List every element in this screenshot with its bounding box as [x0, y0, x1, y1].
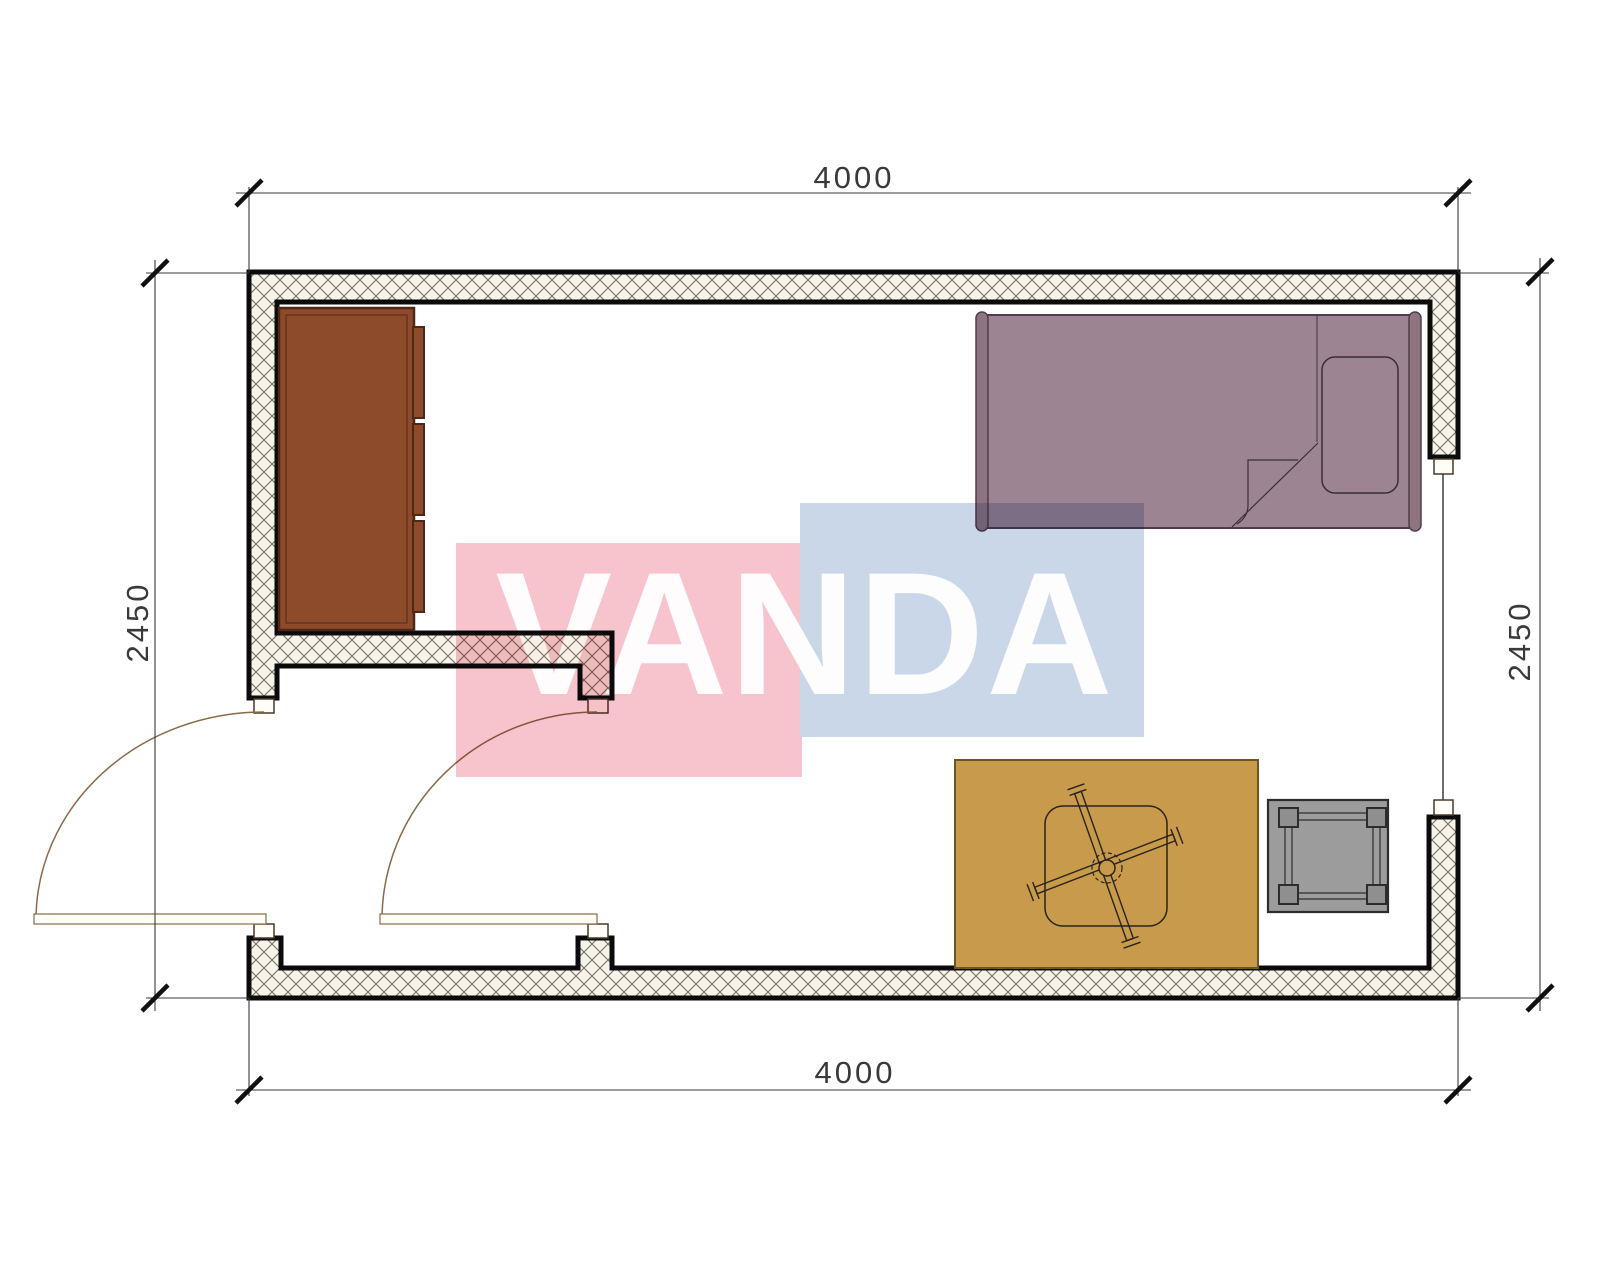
dimension-top-lines: [236, 187, 1471, 272]
floor-plan-page: VANDA: [0, 0, 1600, 1280]
dimension-top-label: 4000: [814, 160, 895, 195]
wardrobe-drawers: [413, 327, 424, 612]
door-left-leaf: [34, 914, 266, 924]
jamb-left-door-bottom: [254, 924, 274, 938]
jamb-second-door-top: [588, 699, 608, 713]
bed-rail-right: [1409, 312, 1421, 531]
dimension-right-label: 2450: [1502, 601, 1537, 682]
jamb-left-door-top: [254, 699, 274, 713]
wardrobe: [279, 308, 424, 630]
door-second: [380, 712, 597, 924]
bed-rail-left: [976, 312, 988, 531]
jamb-window-bottom: [1434, 800, 1453, 815]
jamb-second-door-bottom: [588, 924, 608, 938]
door-left-swing-arc: [36, 712, 264, 920]
door-second-swing-arc: [382, 712, 597, 920]
pillow: [1322, 357, 1398, 493]
table-center-hub: [1099, 860, 1115, 876]
floor-plan-drawing: 4000 4000 2450 2450: [0, 0, 1600, 1280]
bed: [976, 312, 1421, 531]
door-left: [34, 712, 266, 924]
dimension-bottom-label: 4000: [815, 1055, 896, 1090]
rug: [955, 760, 1258, 968]
stool: [1268, 800, 1388, 912]
dimension-left-lines: [146, 260, 249, 1011]
dimension-left-label: 2450: [120, 582, 155, 663]
jamb-window-top: [1434, 459, 1453, 474]
door-second-leaf: [380, 914, 597, 924]
